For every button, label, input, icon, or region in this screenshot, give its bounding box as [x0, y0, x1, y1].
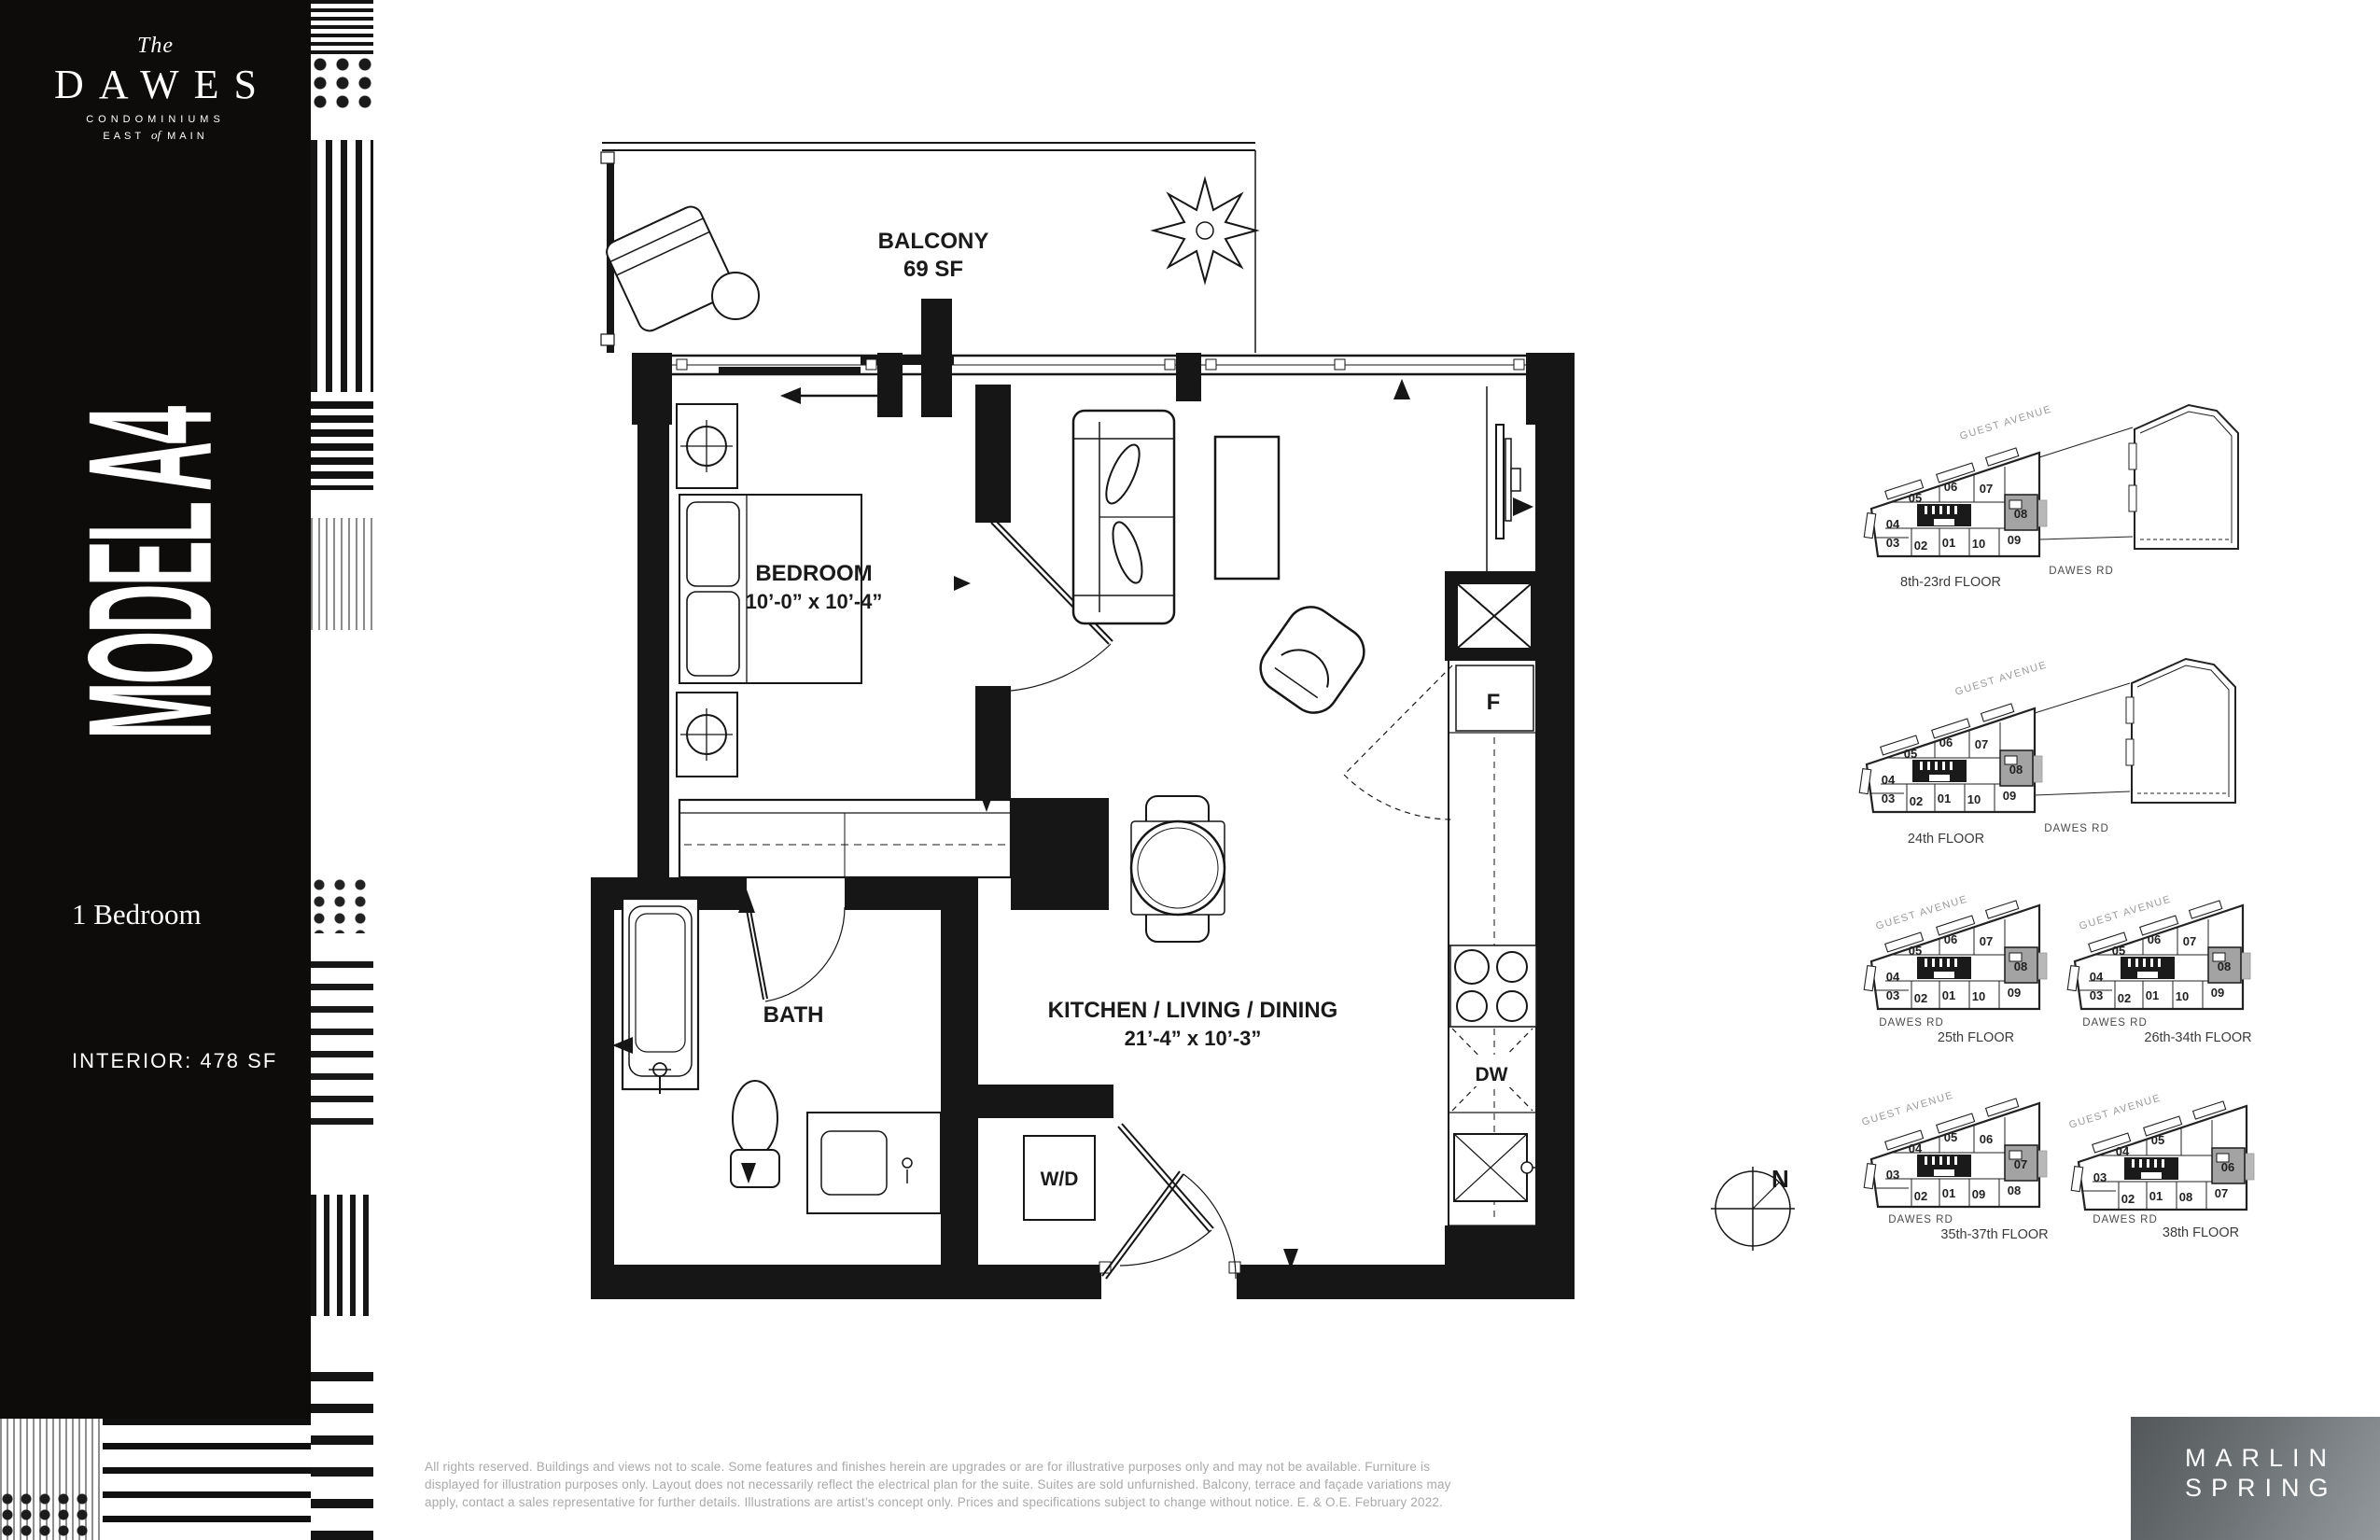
keyplan-unit-10: 10: [1972, 989, 1985, 1003]
keyplan-unit-10: 10: [1967, 792, 1981, 806]
bath-label: BATH: [763, 1002, 824, 1028]
keyplan-unit-08-highlighted: 08: [2009, 763, 2023, 777]
keyplan-38th: 0304050607080102 GUEST AVENUE DAWES RD 3…: [2067, 1092, 2254, 1240]
developer-line: SPRING: [2185, 1473, 2338, 1503]
keyplan-unit-03: 03: [1882, 791, 1895, 805]
main-room-dims: 21’-4” x 10’-3”: [1125, 1027, 1262, 1050]
disclaimer-line: All rights reserved. Buildings and views…: [425, 1458, 1470, 1476]
keyplan-unit-09: 09: [2211, 986, 2224, 1000]
keyplan-unit-04: 04: [1909, 1141, 1923, 1155]
keyplan-unit-01: 01: [1938, 791, 1951, 805]
keyplan-unit-09: 09: [2008, 533, 2021, 547]
keyplan-unit-09: 09: [2008, 986, 2021, 1000]
brochure-page: { "sidebar": { "brand_the": "The", "bran…: [0, 0, 2380, 1540]
keyplan-unit-01: 01: [1942, 536, 1955, 550]
balcony-table: [712, 273, 759, 319]
floor-label: 25th FLOOR: [1938, 1030, 2014, 1045]
entry-door: [1102, 1171, 1236, 1279]
street-label: GUEST AVENUE: [2067, 1092, 2163, 1130]
keyplan-unit-07: 07: [1980, 482, 1993, 496]
keyplan-unit-07: 07: [1980, 934, 1993, 948]
vanity-sink: [807, 1113, 941, 1213]
dishwasher-label: DW: [1476, 1064, 1508, 1085]
window-marker: [1393, 379, 1410, 399]
keyplan-unit-02: 02: [2118, 991, 2131, 1005]
street-label: DAWES RD: [2082, 1017, 2148, 1029]
keyplan-unit-01: 01: [1942, 1186, 1955, 1200]
keyplan-unit-04: 04: [1886, 517, 1900, 531]
keyplan-tower: [2126, 659, 2235, 803]
keyplan-unit-08: 08: [2179, 1190, 2192, 1204]
keyplan-unit-08-highlighted: 08: [2218, 959, 2231, 973]
keyplan-unit-07: 07: [2183, 934, 2196, 948]
bath-door: [747, 907, 845, 1001]
keyplan-unit-03: 03: [1886, 988, 1899, 1002]
sofa: [1073, 411, 1174, 623]
fridge-door-swing: [1344, 665, 1452, 819]
keyplan-unit-06: 06: [1944, 932, 1957, 946]
keyplans: 04050607080910010203 GUEST AVENUE DAWES …: [1711, 403, 2254, 1251]
keyplan-unit-03: 03: [1886, 536, 1899, 550]
balcony-label: BALCONY: [878, 229, 989, 254]
disclaimer: All rights reserved. Buildings and views…: [425, 1458, 1470, 1511]
balcony-area: 69 SF: [903, 257, 963, 282]
street-label: DAWES RD: [1879, 1017, 1944, 1029]
kitchen: F DW: [1344, 571, 1542, 1225]
plant-icon: [1154, 179, 1256, 282]
keyplan-unit-08-highlighted: 08: [2014, 507, 2027, 521]
bathtub: [623, 899, 698, 1094]
floor-label: 24th FLOOR: [1908, 832, 1984, 847]
bedroom-label: BEDROOM: [755, 561, 872, 586]
keyplan-unit-03: 03: [2093, 1170, 2107, 1184]
nightstand: [677, 404, 737, 488]
keyplan-unit-07: 07: [2215, 1186, 2228, 1200]
keyplan-unit-03: 03: [2090, 988, 2103, 1002]
keyplan-unit-02: 02: [1910, 794, 1923, 808]
disclaimer-line: apply, contact a sales representative fo…: [425, 1493, 1470, 1511]
balcony-lounge-chair: [603, 203, 737, 335]
washer-dryer-label: W/D: [1041, 1169, 1079, 1190]
keyplan-unit-08-highlighted: 08: [2014, 959, 2027, 973]
compass-north-label: N: [1771, 1165, 1789, 1193]
keyplan-tower: [2129, 405, 2238, 549]
keyplan-unit-05: 05: [1904, 747, 1917, 761]
keyplan-unit-02: 02: [1914, 1189, 1927, 1203]
street-label: DAWES RD: [1888, 1214, 1953, 1225]
floor-plan-drawing: BALCONY 69 SF: [0, 0, 2380, 1540]
marlin-spring-logo: MARLIN SPRING: [2131, 1417, 2380, 1540]
keyplan-unit-06: 06: [1939, 735, 1953, 749]
stove: [1450, 945, 1536, 1027]
keyplan-8th-23rd: 04050607080910010203 GUEST AVENUE DAWES …: [1864, 403, 2114, 590]
laundry-closet: W/D: [1024, 1124, 1213, 1266]
lounge-chair: [1251, 597, 1373, 722]
keyplan-unit-10: 10: [1972, 537, 1985, 551]
keyplan-unit-04: 04: [2116, 1144, 2130, 1158]
keyplan-35th-37th: 030405060708090102 GUEST AVENUE DAWES RD…: [1860, 1089, 2048, 1242]
floor-label: 26th-34th FLOOR: [2144, 1030, 2251, 1045]
developer-line: MARLIN: [2185, 1443, 2338, 1473]
keyplan-unit-05: 05: [1944, 1130, 1957, 1144]
bathroom: BATH: [612, 889, 941, 1213]
keyplan-unit-05: 05: [1909, 491, 1922, 505]
suite-plan: BALCONY 69 SF: [591, 143, 1575, 1299]
disclaimer-line: displayed for illustration purposes only…: [425, 1476, 1470, 1493]
keyplan-unit-02: 02: [1914, 991, 1927, 1005]
keyplan-unit-02: 02: [2121, 1192, 2135, 1206]
street-label: GUEST AVENUE: [1958, 403, 2053, 441]
keyplan-unit-03: 03: [1886, 1168, 1899, 1182]
keyplan-unit-10: 10: [2176, 989, 2189, 1003]
keyplan-unit-05: 05: [2112, 944, 2125, 958]
bedroom-dims: 10’-0” x 10’-4”: [746, 590, 883, 613]
keyplan-unit-09: 09: [2003, 789, 2016, 803]
fridge-label: F: [1487, 690, 1501, 715]
keyplan-unit-07-highlighted: 07: [2014, 1157, 2027, 1171]
keyplan-unit-06-highlighted: 06: [2221, 1160, 2234, 1174]
main-room-label: KITCHEN / LIVING / DINING: [1048, 998, 1338, 1023]
dining-table: [1131, 796, 1225, 942]
bedroom-closet: [679, 800, 1011, 877]
floor-label: 38th FLOOR: [2163, 1225, 2239, 1240]
floor-label: 35th-37th FLOOR: [1940, 1227, 2048, 1242]
street-label: DAWES RD: [2044, 823, 2109, 834]
keyplan-25th: 04050607080910010203 GUEST AVENUE DAWES …: [1864, 893, 2047, 1045]
kitchen-sink: [1454, 1134, 1542, 1201]
keyplan-unit-04: 04: [1886, 970, 1900, 984]
compass-icon: N: [1711, 1165, 1795, 1251]
nightstand: [677, 693, 737, 777]
toilet: [731, 1081, 779, 1187]
shaft: [1445, 571, 1542, 661]
keyplan-unit-06: 06: [1944, 480, 1957, 494]
bed: [679, 495, 861, 683]
keyplan-unit-05: 05: [2151, 1133, 2164, 1147]
coffee-table: [1215, 437, 1279, 579]
keyplan-unit-01: 01: [1942, 988, 1955, 1002]
keyplan-unit-09: 09: [1972, 1187, 1985, 1201]
keyplan-unit-01: 01: [2146, 988, 2159, 1002]
floor-label: 8th-23rd FLOOR: [1900, 575, 2001, 590]
keyplan-unit-02: 02: [1914, 539, 1927, 553]
street-label: DAWES RD: [2049, 566, 2114, 577]
keyplan-unit-01: 01: [2149, 1189, 2163, 1203]
street-label: GUEST AVENUE: [1953, 659, 2049, 697]
keyplan-24th: 04050607080910010203 GUEST AVENUE DAWES …: [1859, 659, 2109, 847]
street-label: DAWES RD: [2093, 1214, 2158, 1225]
keyplan-unit-05: 05: [1909, 944, 1922, 958]
closet-marker: [954, 576, 971, 591]
keyplan-26th-34th: 04050607080910010203 GUEST AVENUE DAWES …: [2067, 893, 2251, 1045]
keyplan-unit-07: 07: [1975, 737, 1988, 751]
keyplan-unit-06: 06: [1980, 1132, 1993, 1146]
keyplan-unit-04: 04: [2090, 970, 2104, 984]
street-label: GUEST AVENUE: [1860, 1089, 1955, 1127]
keyplan-unit-08: 08: [2008, 1183, 2021, 1197]
keyplan-unit-06: 06: [2148, 932, 2161, 946]
keyplan-unit-04: 04: [1882, 773, 1896, 787]
